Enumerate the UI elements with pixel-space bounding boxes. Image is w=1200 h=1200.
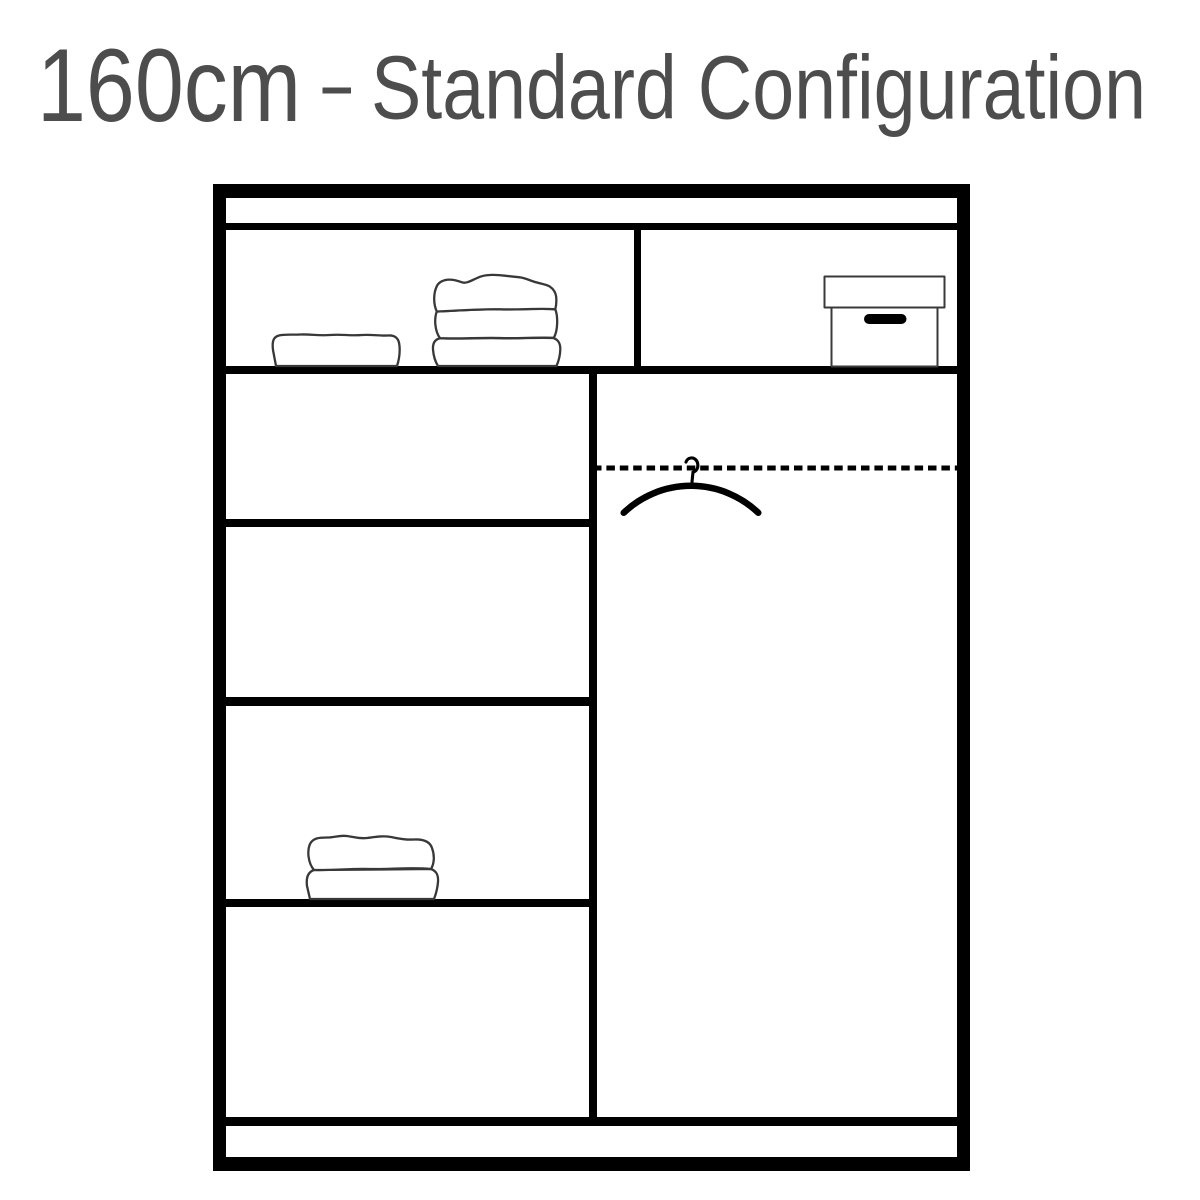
svg-text:Standard Configuration: Standard Configuration (371, 39, 1146, 139)
svg-text:160cm: 160cm (37, 28, 301, 144)
